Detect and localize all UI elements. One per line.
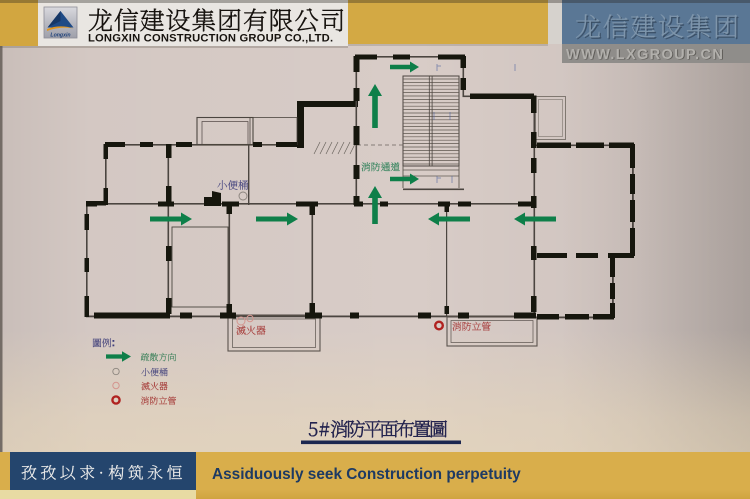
svg-text:Longxin: Longxin (50, 33, 70, 39)
svg-text:WWW.LXGROUP.CN: WWW.LXGROUP.CN (566, 47, 724, 63)
svg-text:LONGXIN CONSTRUCTION GROUP CO.: LONGXIN CONSTRUCTION GROUP CO.,LTD. (88, 32, 333, 44)
svg-text:Assiduously seek Construction: Assiduously seek Construction perpetuity (212, 466, 521, 483)
